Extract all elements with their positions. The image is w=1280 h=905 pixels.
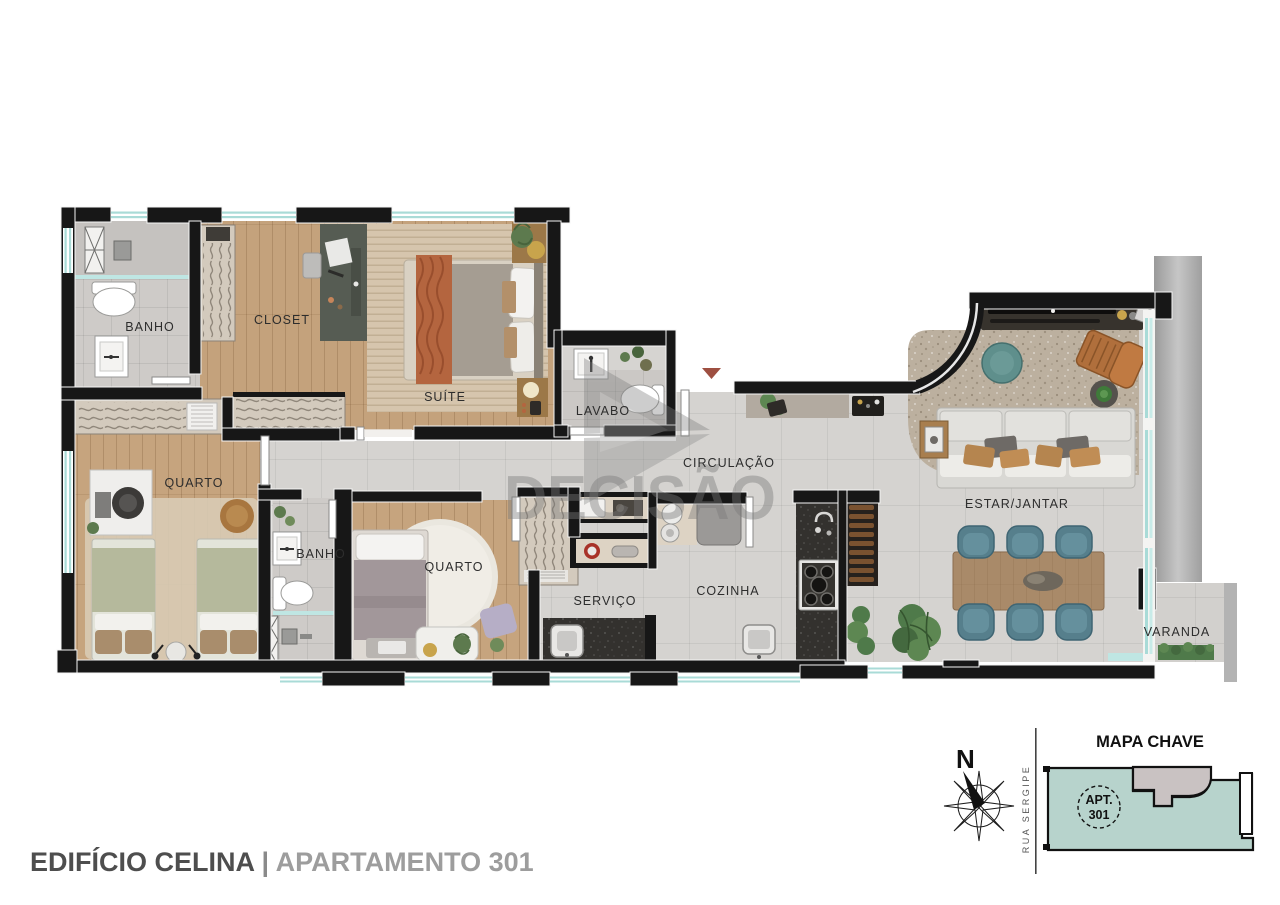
svg-text:VARANDA: VARANDA	[1144, 625, 1211, 639]
svg-text:CLOSET: CLOSET	[254, 313, 310, 327]
svg-text:SERVIÇO: SERVIÇO	[573, 594, 636, 608]
svg-text:EDIFÍCIO CELINA | APARTAMENTO: EDIFÍCIO CELINA | APARTAMENTO 301	[30, 846, 534, 877]
svg-text:301: 301	[1089, 808, 1110, 822]
svg-text:RUA SERGIPE: RUA SERGIPE	[1021, 765, 1031, 854]
svg-text:LAVABO: LAVABO	[576, 404, 630, 418]
svg-text:BANHO: BANHO	[125, 320, 174, 334]
svg-text:APT.: APT.	[1085, 793, 1112, 807]
svg-text:SUÍTE: SUÍTE	[424, 389, 466, 404]
svg-text:ESTAR/JANTAR: ESTAR/JANTAR	[965, 497, 1069, 511]
svg-text:DECISÃO: DECISÃO	[504, 464, 776, 533]
svg-text:QUARTO: QUARTO	[424, 560, 483, 574]
svg-text:CIRCULAÇÃO: CIRCULAÇÃO	[683, 456, 775, 470]
svg-text:MAPA CHAVE: MAPA CHAVE	[1096, 733, 1204, 751]
svg-text:QUARTO: QUARTO	[164, 476, 223, 490]
svg-text:COZINHA: COZINHA	[696, 584, 759, 598]
svg-text:BANHO: BANHO	[296, 547, 345, 561]
svg-text:N: N	[956, 744, 975, 774]
